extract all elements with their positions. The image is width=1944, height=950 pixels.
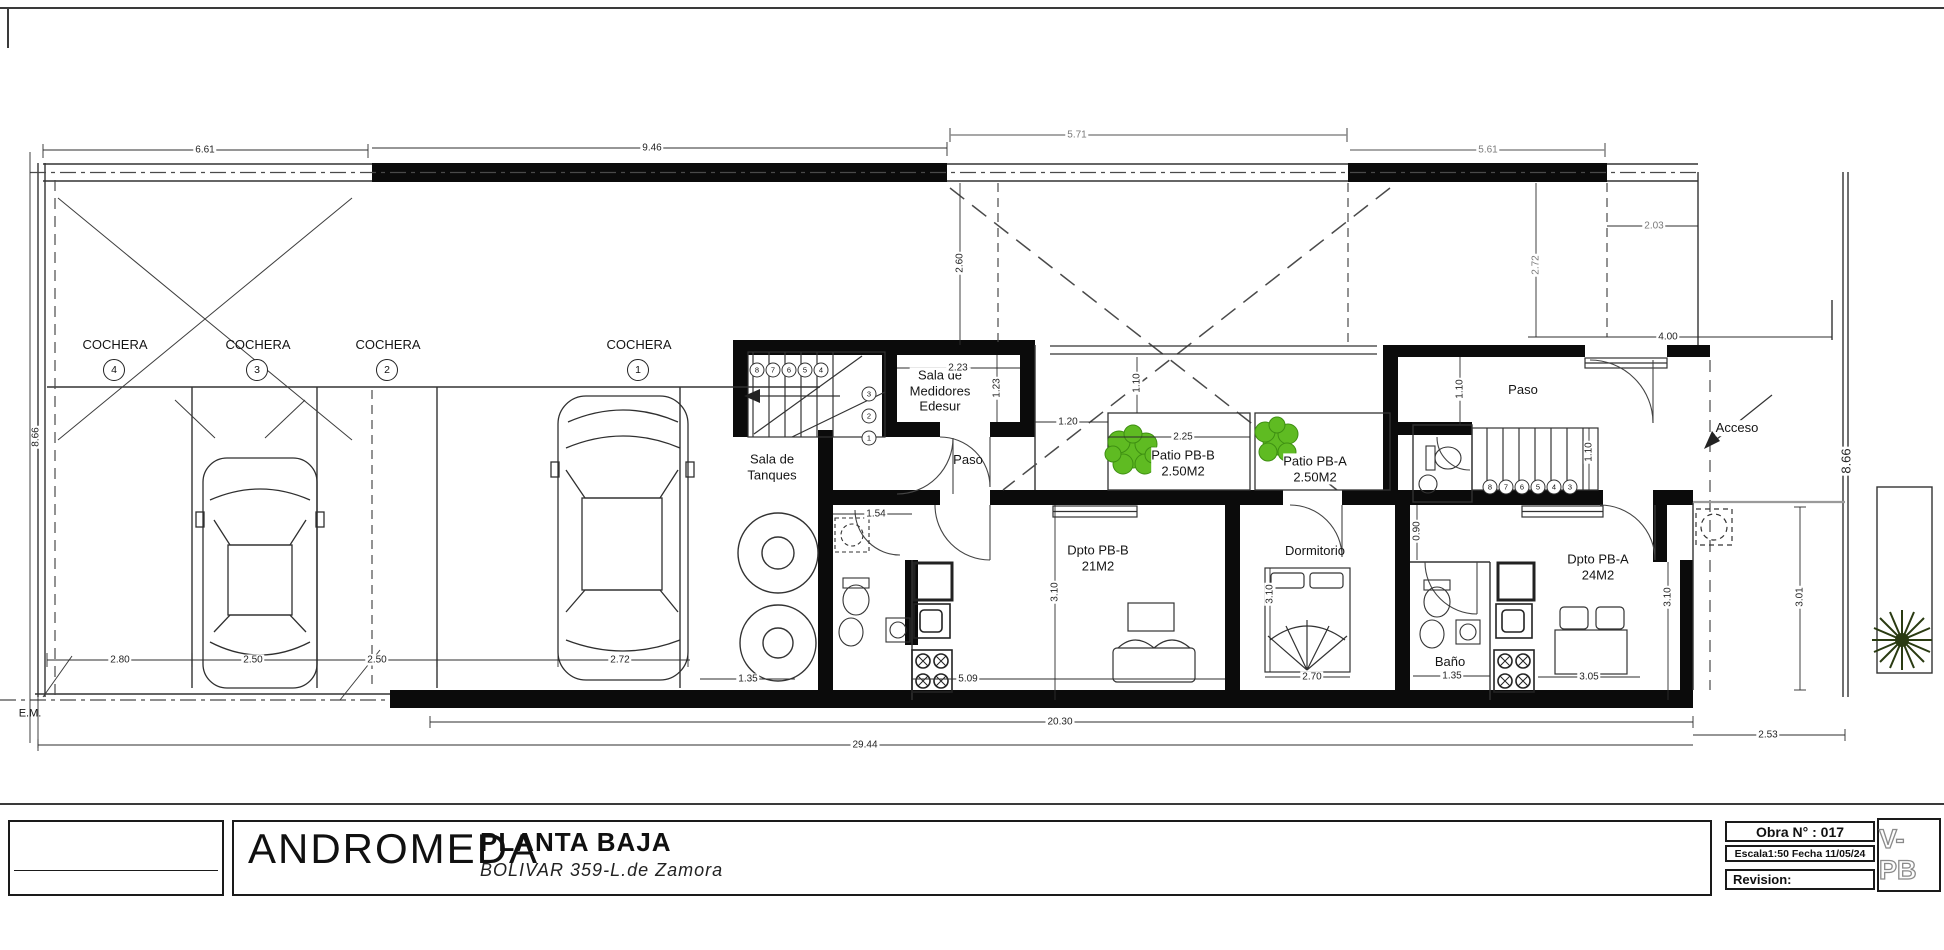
cochera-4-number: 4 bbox=[103, 359, 125, 381]
sheet-frame bbox=[0, 8, 1944, 804]
dim-label-top-571: 5.71 bbox=[1065, 130, 1088, 141]
revision-field: Revision: bbox=[1725, 869, 1875, 890]
dim-label-top-661: 6.61 bbox=[193, 145, 216, 156]
dim-label-260v: 2.60 bbox=[955, 251, 966, 274]
dim-label-110-stair: 1.10 bbox=[1584, 440, 1595, 463]
car-cochera-1 bbox=[551, 396, 694, 680]
dim-label-123v: 1.23 bbox=[992, 376, 1003, 399]
stair-step-number: 5 bbox=[1531, 480, 1546, 495]
cochera-2-number: 2 bbox=[376, 359, 398, 381]
project-address: BOLIVAR 359-L.de Zamora bbox=[480, 861, 723, 879]
dim-label-154: 1.54 bbox=[864, 509, 887, 520]
dim-label-135-b: 1.35 bbox=[736, 674, 759, 685]
wc-right-fixtures bbox=[1419, 446, 1461, 493]
bed bbox=[1265, 568, 1350, 672]
cochera-1-number: 1 bbox=[627, 359, 649, 381]
scale-date-field: Escala1:50 Fecha 11/05/24 bbox=[1725, 845, 1875, 862]
dim-label-310-dorm: 3.10 bbox=[1265, 582, 1276, 605]
stair-step-number: 4 bbox=[1547, 480, 1562, 495]
dim-label-225: 2.25 bbox=[1171, 432, 1194, 443]
dim-label-top-946: 9.46 bbox=[640, 143, 663, 154]
stair-step-number: 6 bbox=[782, 363, 797, 378]
cochera-cross-marks bbox=[43, 198, 380, 700]
stair-step-number: 7 bbox=[1499, 480, 1514, 495]
dim-label-135-a: 1.35 bbox=[1440, 671, 1463, 682]
dim-label-203: 2.03 bbox=[1642, 221, 1665, 232]
dim-label-400: 4.00 bbox=[1656, 332, 1679, 343]
dim-label-2030: 20.30 bbox=[1045, 717, 1074, 728]
room-label-dormitorio: Dormitorio bbox=[1285, 543, 1345, 559]
drawing-sheet: COCHERA 4 COCHERA 3 COCHERA 2 COCHERA 1 … bbox=[0, 0, 1944, 950]
street-tree bbox=[1872, 610, 1932, 670]
dim-label-110-patio: 1.10 bbox=[1132, 371, 1143, 394]
dpto-a-furniture bbox=[1555, 607, 1627, 674]
dim-label-270: 2.70 bbox=[1300, 672, 1323, 683]
dim-label-310-dptob: 3.10 bbox=[1050, 580, 1061, 603]
sheet-code-box: V-PB bbox=[1877, 818, 1941, 892]
dim-label-090v: 0.90 bbox=[1412, 519, 1423, 542]
dim-label-272v: 2.72 bbox=[1531, 253, 1542, 276]
dim-label-310-dptoa: 3.10 bbox=[1663, 585, 1674, 608]
room-label-dpto-a: Dpto PB-A 24M2 bbox=[1567, 551, 1628, 582]
dim-label-223: 2.23 bbox=[946, 363, 969, 374]
stair-step-number: 8 bbox=[750, 363, 765, 378]
dim-label-coch4: 2.80 bbox=[108, 655, 131, 666]
room-label-patio-b: Patio PB-B 2.50M2 bbox=[1151, 447, 1215, 478]
label-em-medianera: E.M. bbox=[19, 707, 42, 720]
stair-step-number: 1 bbox=[862, 431, 877, 446]
walls-thick bbox=[372, 163, 1710, 708]
room-label-sala-medidores: Sala de Medidores Edesur bbox=[910, 368, 971, 415]
cochera-3-number: 3 bbox=[246, 359, 268, 381]
stair-step-number: 4 bbox=[814, 363, 829, 378]
dim-label-110-paso: 1.10 bbox=[1455, 377, 1466, 400]
dpto-b-furniture bbox=[1113, 603, 1195, 682]
room-label-cochera-1: COCHERA bbox=[606, 337, 671, 353]
dim-label-coch1: 2.72 bbox=[608, 655, 631, 666]
walls-thin bbox=[35, 163, 1932, 700]
room-label-paso-right: Paso bbox=[1508, 382, 1538, 398]
room-label-patio-a: Patio PB-A 2.50M2 bbox=[1283, 453, 1347, 484]
stair-step-number: 7 bbox=[766, 363, 781, 378]
car-cochera-3 bbox=[196, 458, 324, 688]
dim-label-301v: 3.01 bbox=[1795, 585, 1806, 608]
axis-lines bbox=[0, 173, 1710, 701]
kitchen-a bbox=[1494, 563, 1534, 692]
stair-step-number: 5 bbox=[798, 363, 813, 378]
dim-label-305: 3.05 bbox=[1577, 672, 1600, 683]
room-label-acceso: Acceso bbox=[1716, 420, 1759, 436]
dim-label-866-right: 8.66 bbox=[1839, 446, 1854, 475]
water-tanks bbox=[738, 513, 818, 681]
stair-step-number: 8 bbox=[1483, 480, 1498, 495]
stair-step-number: 3 bbox=[1563, 480, 1578, 495]
dim-label-coch3: 2.50 bbox=[241, 655, 264, 666]
dim-label-2944: 29.44 bbox=[850, 740, 879, 751]
dim-label-866-left: 8.66 bbox=[31, 425, 42, 448]
acceso-area bbox=[1693, 395, 1845, 545]
room-label-paso-left: Paso bbox=[953, 452, 983, 468]
stair-step-number: 6 bbox=[1515, 480, 1530, 495]
room-label-cochera-2: COCHERA bbox=[355, 337, 420, 353]
dim-label-509: 5.09 bbox=[956, 674, 979, 685]
drawing-title: PLANTA BAJA bbox=[480, 829, 672, 855]
stair-step-number: 3 bbox=[862, 387, 877, 402]
dim-label-top-561: 5.61 bbox=[1476, 145, 1499, 156]
room-label-cochera-3: COCHERA bbox=[225, 337, 290, 353]
title-block-left-box bbox=[8, 820, 224, 896]
stair-step-number: 2 bbox=[862, 409, 877, 424]
dimension-lines-gray bbox=[950, 128, 1605, 157]
room-label-bano: Baño bbox=[1435, 654, 1465, 670]
floor-plan-drawing bbox=[0, 0, 1944, 950]
room-label-sala-tanques: Sala de Tanques bbox=[747, 451, 796, 482]
dimension-lines bbox=[30, 142, 1845, 751]
dim-label-coch2: 2.50 bbox=[365, 655, 388, 666]
bathroom-b-fixtures bbox=[835, 518, 910, 646]
dim-label-253: 2.53 bbox=[1756, 730, 1779, 741]
room-label-dpto-b: Dpto PB-B 21M2 bbox=[1067, 542, 1128, 573]
dim-label-120: 1.20 bbox=[1056, 417, 1079, 428]
obra-number-field: Obra N° : 017 bbox=[1725, 821, 1875, 842]
room-label-cochera-4: COCHERA bbox=[82, 337, 147, 353]
